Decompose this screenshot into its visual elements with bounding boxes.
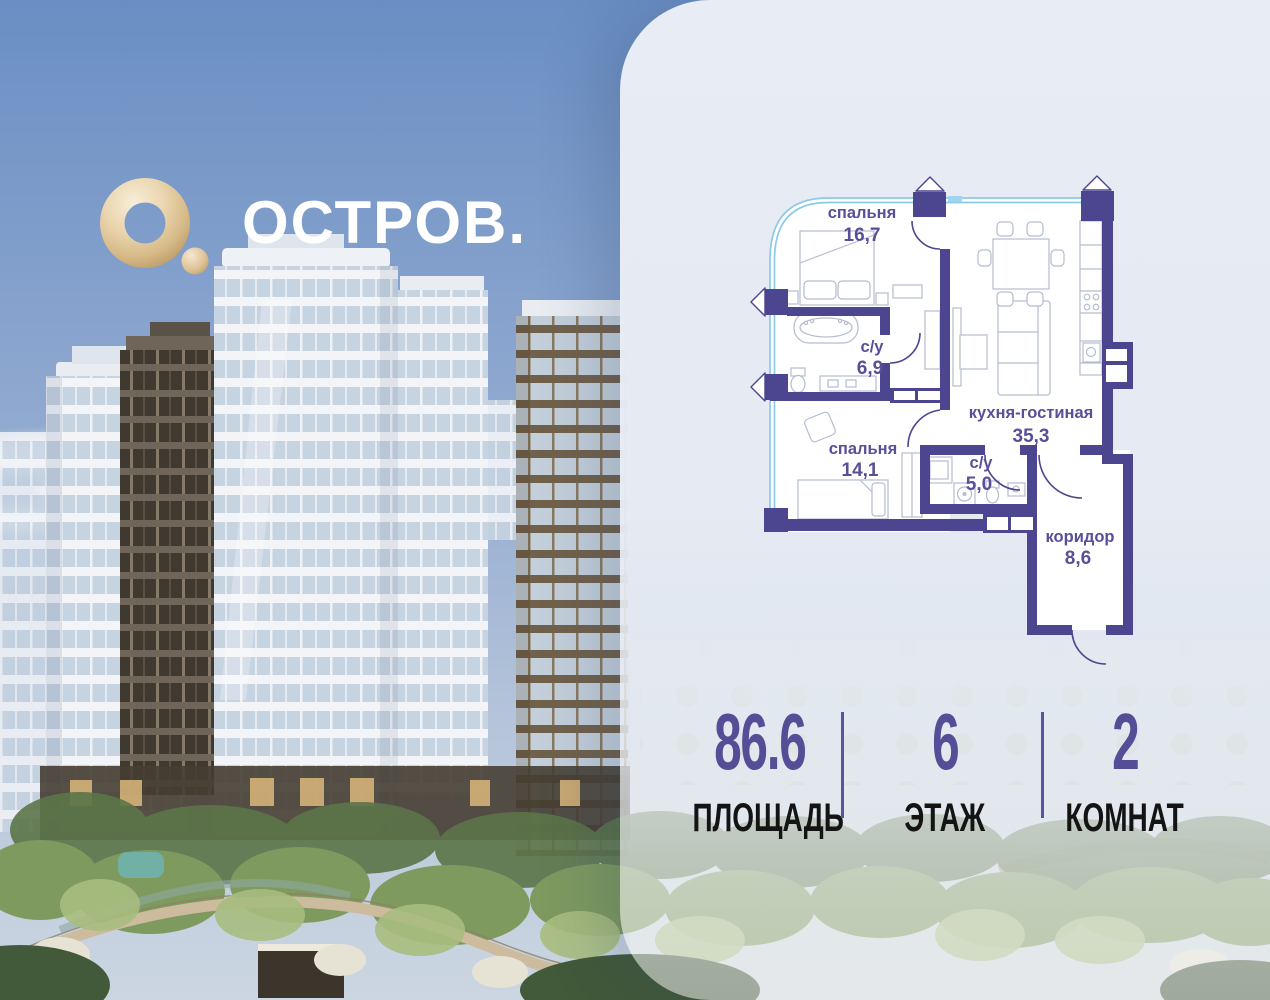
stat-rooms: 2 КОМНАТ	[1025, 702, 1225, 838]
listing-flyer: { "logo": { "brand": "ОСТРОВ." }, "floor…	[0, 0, 1270, 1000]
stat-rooms-label: КОМНАТ	[1066, 798, 1184, 838]
stat-floor: 6 ЭТАЖ	[845, 702, 1045, 838]
brand-name: ОСТРОВ.	[242, 188, 527, 257]
stats-divider	[841, 712, 844, 818]
stat-area: 86.6 ПЛОЩАДЬ	[660, 702, 860, 838]
info-panel: спальня 16,7 с/у 6,9 кухня-гостиная 35,3…	[620, 0, 1270, 1000]
apartment-stats: 86.6 ПЛОЩАДЬ 6 ЭТАЖ 2 КОМНАТ	[620, 0, 1270, 1000]
gold-ring	[100, 178, 190, 268]
stat-area-label: ПЛОЩАДЬ	[692, 798, 843, 838]
stat-floor-label: ЭТАЖ	[905, 798, 986, 838]
tower-central-white	[214, 234, 398, 836]
tower-right-of-center	[396, 276, 488, 795]
stat-area-value: 86.6	[714, 702, 806, 782]
gold-dot	[182, 248, 209, 275]
stat-floor-value: 6	[932, 702, 958, 782]
logo-o-icon	[98, 169, 218, 281]
playground	[118, 852, 164, 878]
brand-logo: ОСТРОВ.	[98, 169, 527, 281]
stat-rooms-value: 2	[1112, 702, 1138, 782]
